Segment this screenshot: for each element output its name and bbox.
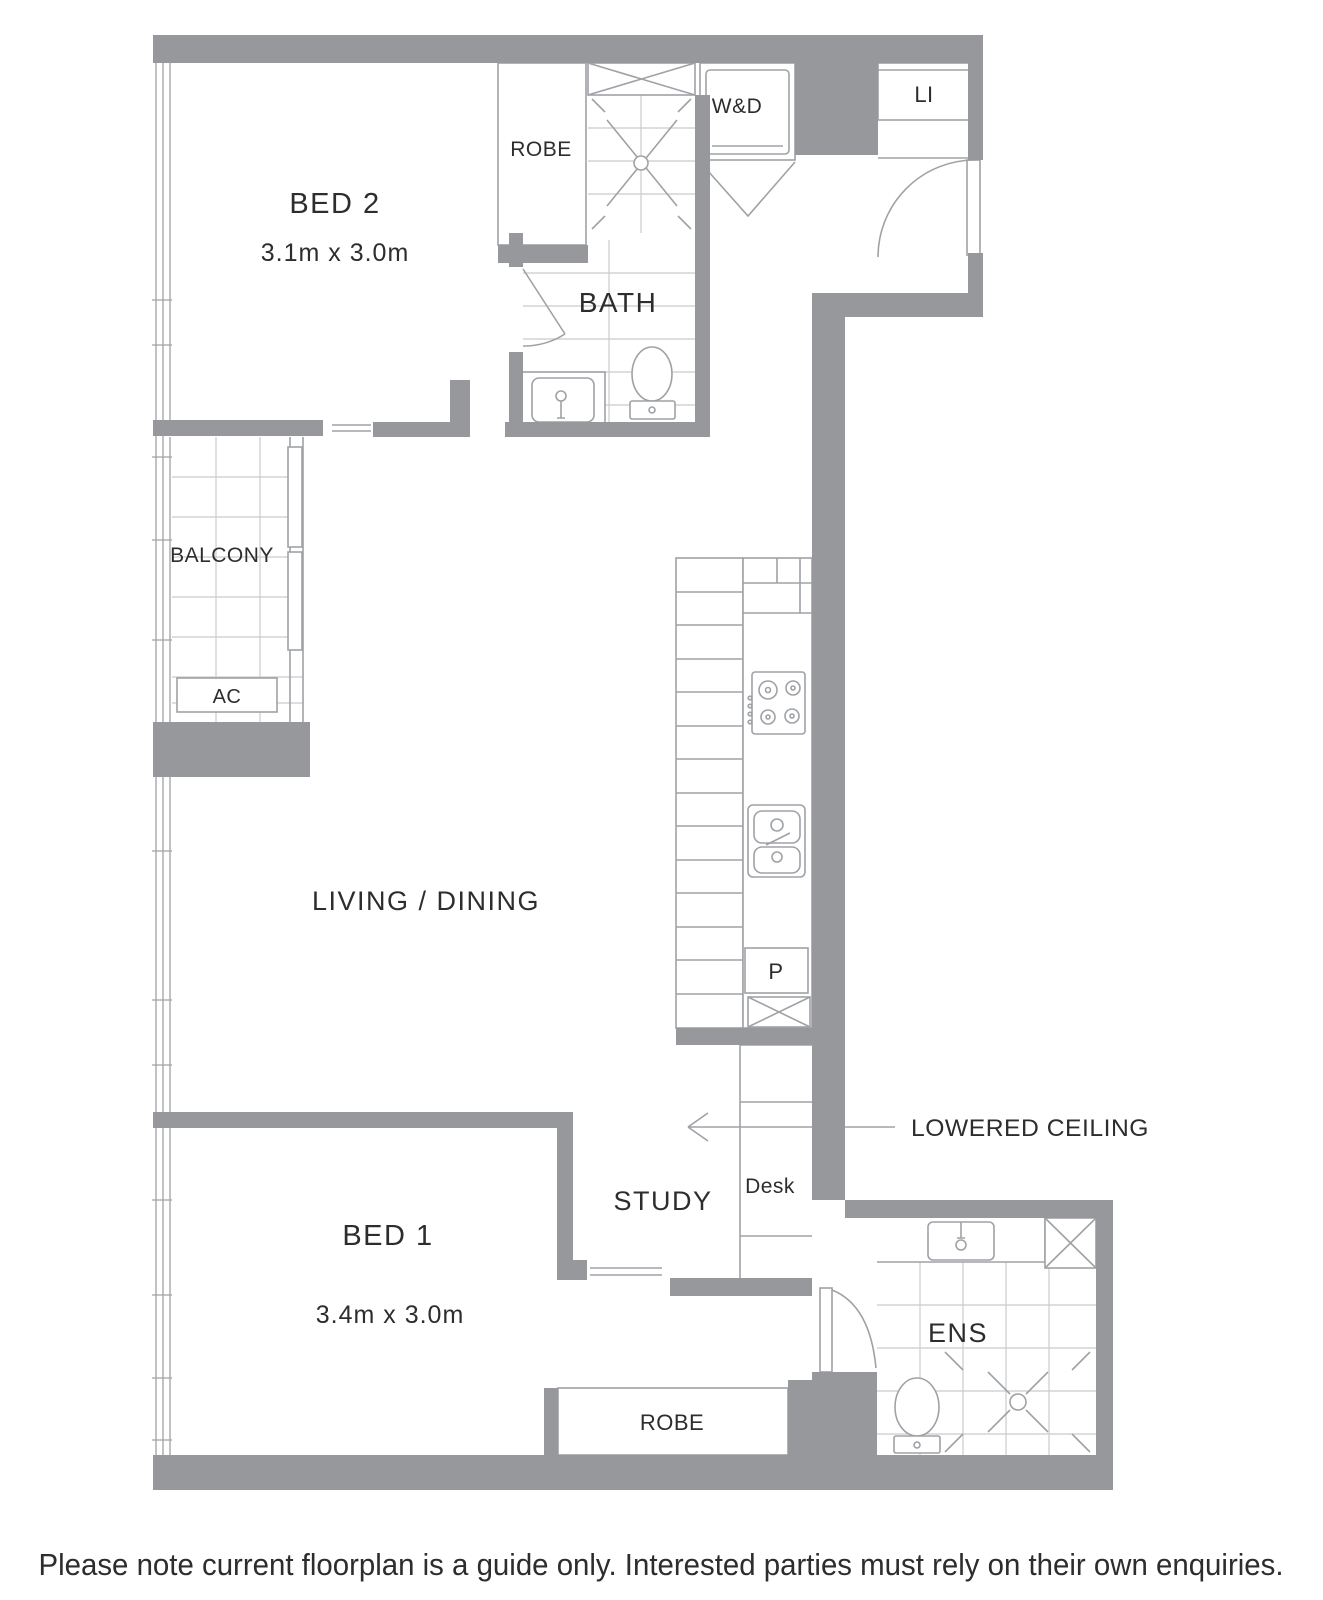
wall-ens-top (845, 1200, 1113, 1218)
wall-right-top-b (968, 253, 983, 295)
study-label: STUDY (613, 1186, 712, 1216)
balcony-label: BALCONY (170, 544, 274, 567)
ens-cabinet-x (1045, 1218, 1096, 1268)
bath-vanity-sink (515, 372, 605, 428)
ens-vanity-sink (877, 1218, 1045, 1262)
ens-toilet (894, 1378, 940, 1453)
bed1-dims: 3.4m x 3.0m (316, 1301, 465, 1329)
robe-bed2-label: ROBE (510, 138, 572, 161)
floorplan-drawing: BED 2 3.1m x 3.0m ROBE BATH W&D LI BALCO… (0, 0, 1323, 1600)
wall-bed1-top (153, 1112, 557, 1128)
kitchen-cabinet-x (748, 997, 810, 1027)
desk-label: Desk (745, 1175, 795, 1198)
bed2-dims: 3.1m x 3.0m (261, 239, 410, 267)
wall-balcony-top (153, 420, 323, 436)
disclaimer-text: Please note current floorplan is a guide… (39, 1547, 1284, 1582)
wall-bed1-right (557, 1112, 573, 1264)
wall-bath-bottom (505, 422, 710, 437)
wall-wd-li-block (795, 35, 878, 155)
wall-robe1-left (544, 1388, 558, 1455)
wall-kitchen-endcap (676, 1028, 812, 1045)
bed2-label: BED 2 (289, 188, 380, 220)
living-dining-label: LIVING / DINING (312, 886, 540, 916)
bed1-label: BED 1 (342, 1220, 433, 1252)
wall-bed2-pier (450, 380, 470, 437)
wall-kitchen-right (812, 317, 845, 1200)
ens-label: ENS (928, 1318, 988, 1348)
background (0, 0, 1323, 1600)
wall-bed1-right-foot (557, 1260, 587, 1280)
floorplan-page: BED 2 3.1m x 3.0m ROBE BATH W&D LI BALCO… (0, 0, 1323, 1600)
pantry-label: P (768, 959, 783, 984)
overhead-cabinet-x (588, 63, 695, 95)
wall-right-top-a (968, 63, 983, 160)
bath-label: BATH (579, 287, 658, 318)
kitchen-sink (748, 805, 805, 877)
bath-toilet (630, 347, 675, 419)
wall-balcony-bottom (153, 722, 310, 777)
wall-bath-right (695, 95, 710, 437)
wall-under-entry (812, 293, 983, 317)
wall-bath-left-lower (509, 352, 523, 424)
kitchen-bench (676, 558, 743, 1028)
cooktop (748, 672, 805, 734)
wall-robe2-stub (498, 245, 588, 263)
robe-bed1-label: ROBE (640, 1410, 704, 1435)
ac-label: AC (213, 686, 242, 708)
washer-dryer-label: W&D (712, 95, 763, 118)
lowered-ceiling-label: LOWERED CEILING (911, 1115, 1149, 1142)
wall-ens-right (1096, 1218, 1113, 1455)
wall-bottom (153, 1455, 1113, 1490)
wall-study-bottom (670, 1278, 812, 1296)
linen-label: LI (914, 82, 933, 107)
wall-robe1-right (788, 1380, 845, 1455)
